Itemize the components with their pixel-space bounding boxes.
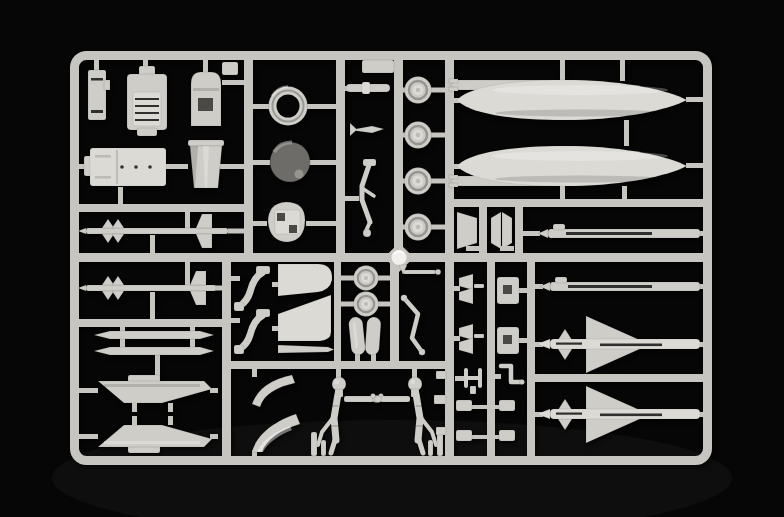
flat-bar (362, 60, 394, 73)
ejection-seat (127, 66, 167, 136)
engine-bulkhead (268, 202, 305, 242)
sprue-photo-svg (0, 0, 784, 517)
actuator-rod (346, 82, 390, 94)
model-sprue-photo (0, 0, 784, 517)
exhaust-cone (188, 140, 224, 188)
radome (270, 142, 310, 182)
top-bracket (222, 62, 238, 75)
cockpit-tub (84, 148, 166, 186)
intake-ring (269, 87, 308, 126)
seat-frame (191, 72, 221, 126)
